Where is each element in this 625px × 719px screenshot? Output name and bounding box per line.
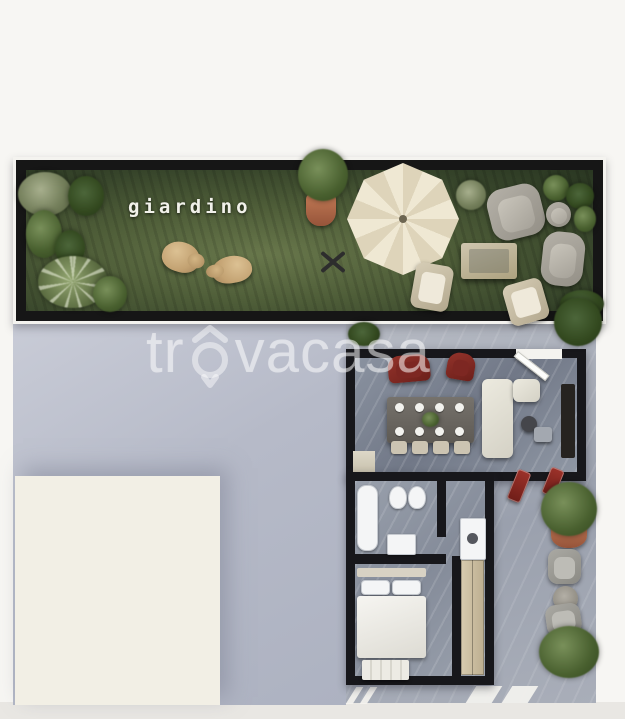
garden-armchair — [539, 230, 586, 288]
ottoman — [534, 427, 552, 442]
washer-drum — [467, 533, 478, 544]
floorplan-render: giardino — [0, 0, 625, 719]
garden-walled-area: giardino — [13, 157, 606, 324]
garden-label: giardino — [128, 196, 252, 218]
potted-tree-foliage — [298, 149, 348, 201]
sofa-chaise — [513, 379, 540, 402]
bed-pillow — [392, 580, 421, 595]
magnifier-house-icon — [186, 324, 234, 388]
terrace-palm — [539, 626, 599, 678]
dining-chair — [433, 441, 449, 454]
bed-duvet — [357, 596, 426, 658]
bathroom-wall — [437, 481, 446, 537]
bed-headboard — [357, 568, 426, 577]
garden-chair — [409, 261, 454, 313]
watermark-text-prefix: tr — [146, 322, 185, 382]
bathroom-vanity — [387, 534, 416, 555]
terrace-chair — [548, 549, 581, 584]
wardrobe — [461, 560, 484, 675]
sofa — [482, 379, 513, 458]
toilet — [389, 486, 407, 509]
bathroom-divider-wall — [346, 554, 446, 564]
watermark-text-suffix: vacasa — [235, 322, 431, 382]
garden-plant — [456, 180, 486, 210]
dining-chair — [454, 441, 470, 454]
dining-chair — [391, 441, 407, 454]
neighbor-roof — [15, 476, 220, 705]
kitchen-counter-return — [353, 451, 375, 472]
garden-plant-cluster — [93, 276, 127, 312]
garden-plant-cluster — [68, 176, 104, 216]
washing-machine — [460, 518, 486, 560]
dining-chair — [412, 441, 428, 454]
garden-pouf — [546, 202, 571, 227]
garden-plant — [566, 183, 594, 209]
tv-sideboard — [561, 384, 575, 458]
table-centerpiece-plant — [422, 412, 439, 427]
bidet — [408, 486, 426, 509]
potted-plant-small — [574, 206, 596, 232]
bed-bench — [362, 660, 409, 680]
terrace-palm — [554, 298, 602, 346]
bedroom-wall — [452, 556, 461, 685]
bathtub — [357, 485, 378, 551]
terrace-potted-plant — [541, 482, 597, 536]
dining-table — [387, 397, 474, 443]
watermark: tr vacasa — [146, 322, 431, 388]
garden-coffee-table — [461, 243, 517, 279]
bed-pillow — [361, 580, 390, 595]
